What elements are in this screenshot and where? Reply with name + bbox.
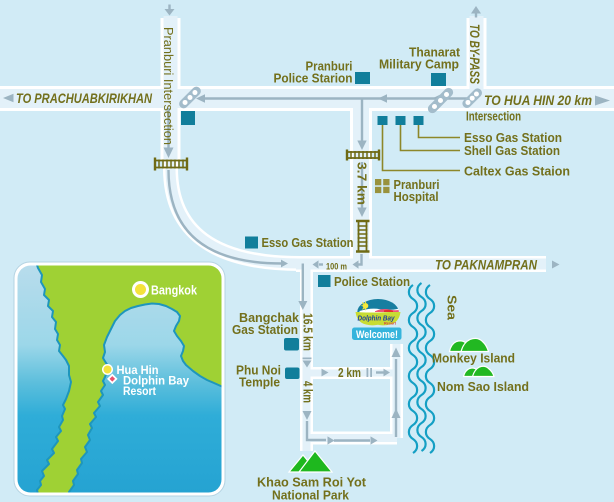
svg-text:National Park: National Park [272, 488, 350, 502]
svg-text:Intersection: Intersection [466, 109, 521, 124]
svg-text:Police Starion: Police Starion [274, 71, 353, 86]
svg-text:Nom Sao Island: Nom Sao Island [437, 379, 529, 394]
svg-text:Military Camp: Military Camp [379, 57, 459, 72]
svg-text:4 km: 4 km [301, 381, 316, 403]
svg-text:16.5 km: 16.5 km [301, 313, 316, 351]
svg-text:Temple: Temple [239, 375, 280, 390]
svg-text:Monkey Island: Monkey Island [432, 351, 515, 366]
svg-text:Sea: Sea [445, 295, 460, 321]
svg-text:Shell Gas Station: Shell Gas Station [464, 143, 560, 158]
svg-text:Pranburi Intersection: Pranburi Intersection [161, 27, 175, 145]
svg-text:Welcome!: Welcome! [356, 329, 398, 341]
svg-text:Police Station: Police Station [334, 274, 410, 289]
svg-text:TO PAKNAMPRAN: TO PAKNAMPRAN [435, 257, 538, 273]
svg-text:TO BY-PASS: TO BY-PASS [467, 24, 483, 84]
svg-text:TO HUA HIN 20 km: TO HUA HIN 20 km [484, 92, 592, 108]
svg-text:100 m: 100 m [326, 262, 347, 273]
svg-text:Hospital: Hospital [394, 189, 439, 204]
svg-text:Gas Station: Gas Station [232, 322, 298, 337]
svg-text:Caltex Gas Staion: Caltex Gas Staion [464, 164, 570, 179]
svg-text:Bangkok: Bangkok [151, 283, 198, 298]
svg-text:TO PRACHUABKIRIKHAN: TO PRACHUABKIRIKHAN [16, 90, 153, 106]
svg-text:3.7 km: 3.7 km [355, 162, 370, 205]
svg-text:2 km: 2 km [338, 365, 361, 380]
svg-text:Esso Gas Station: Esso Gas Station [262, 235, 354, 250]
svg-text:Resort: Resort [384, 321, 397, 325]
svg-text:Resort: Resort [123, 384, 156, 398]
